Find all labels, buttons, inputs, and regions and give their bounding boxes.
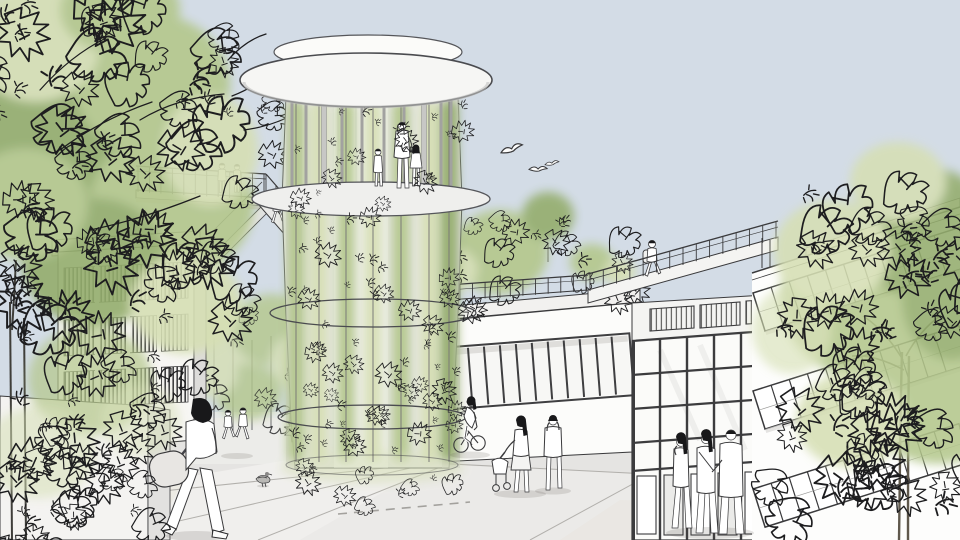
architectural-sketch-scene: Hand-drawn architectural visualization: … bbox=[0, 0, 960, 540]
scene-illustration: Hand-drawn architectural visualization: … bbox=[0, 0, 960, 540]
ribbon-window-band bbox=[450, 333, 634, 409]
tower-deck bbox=[252, 182, 490, 216]
